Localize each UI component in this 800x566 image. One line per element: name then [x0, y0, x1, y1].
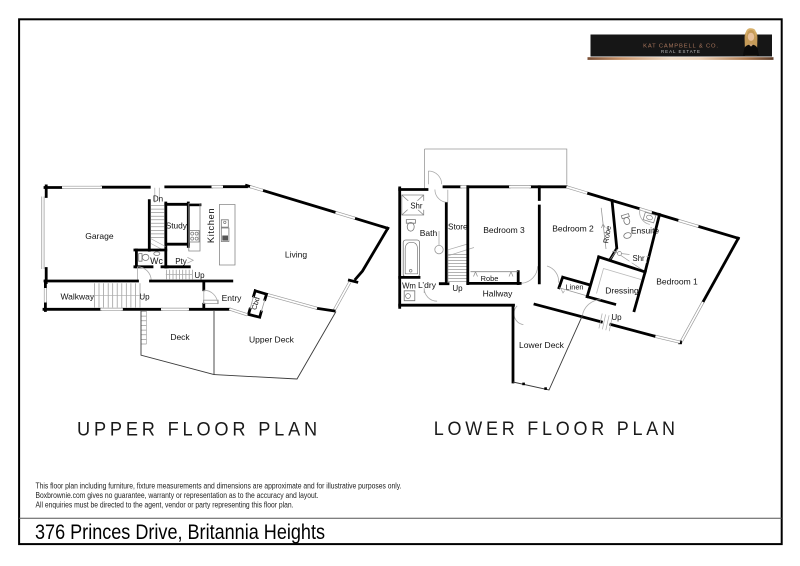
svg-text:Wc: Wc — [150, 256, 163, 266]
svg-text:Bedroom 3: Bedroom 3 — [483, 225, 525, 235]
svg-text:Shr: Shr — [410, 201, 423, 210]
svg-text:Upper Deck: Upper Deck — [249, 335, 295, 345]
svg-text:This floor plan including furn: This floor plan including furniture, fix… — [36, 481, 402, 490]
svg-text:Hallway: Hallway — [483, 289, 514, 299]
svg-text:L’dry: L’dry — [418, 280, 437, 290]
svg-text:Walkway: Walkway — [60, 292, 94, 302]
svg-text:Robe: Robe — [481, 274, 499, 283]
svg-text:Pty: Pty — [175, 257, 187, 266]
svg-text:Lower Deck: Lower Deck — [519, 340, 565, 350]
svg-text:Wm: Wm — [402, 281, 416, 290]
svg-text:Up: Up — [139, 293, 150, 302]
svg-text:Up: Up — [194, 271, 205, 280]
svg-text:Deck: Deck — [170, 332, 190, 342]
svg-text:Bath: Bath — [420, 228, 438, 238]
svg-text:Up: Up — [611, 313, 622, 322]
svg-text:Shr: Shr — [633, 254, 646, 263]
svg-text:Bedroom 2: Bedroom 2 — [552, 224, 594, 234]
svg-text:Kitchen: Kitchen — [206, 208, 216, 243]
svg-text:REAL ESTATE: REAL ESTATE — [661, 49, 701, 54]
svg-text:Store: Store — [448, 222, 468, 231]
svg-text:Boxbrownie.com gives no guaran: Boxbrownie.com gives no guarantee, warra… — [36, 491, 319, 500]
svg-text:Study: Study — [166, 221, 188, 231]
svg-text:Entry: Entry — [222, 293, 243, 303]
svg-text:LOWER FLOOR PLAN: LOWER FLOOR PLAN — [434, 419, 679, 440]
svg-text:Dn: Dn — [153, 195, 163, 204]
svg-text:All enquiries must be directed: All enquiries must be directed to the ag… — [36, 501, 294, 510]
svg-text:376 Princes Drive, Britannia H: 376 Princes Drive, Britannia Heights — [35, 521, 325, 544]
svg-text:Bedroom 1: Bedroom 1 — [656, 277, 698, 287]
svg-text:Garage: Garage — [85, 231, 114, 241]
svg-text:UPPER FLOOR PLAN: UPPER FLOOR PLAN — [77, 419, 321, 440]
svg-text:Up: Up — [452, 284, 463, 293]
svg-text:Living: Living — [285, 250, 307, 260]
svg-text:Dressing: Dressing — [605, 286, 639, 296]
